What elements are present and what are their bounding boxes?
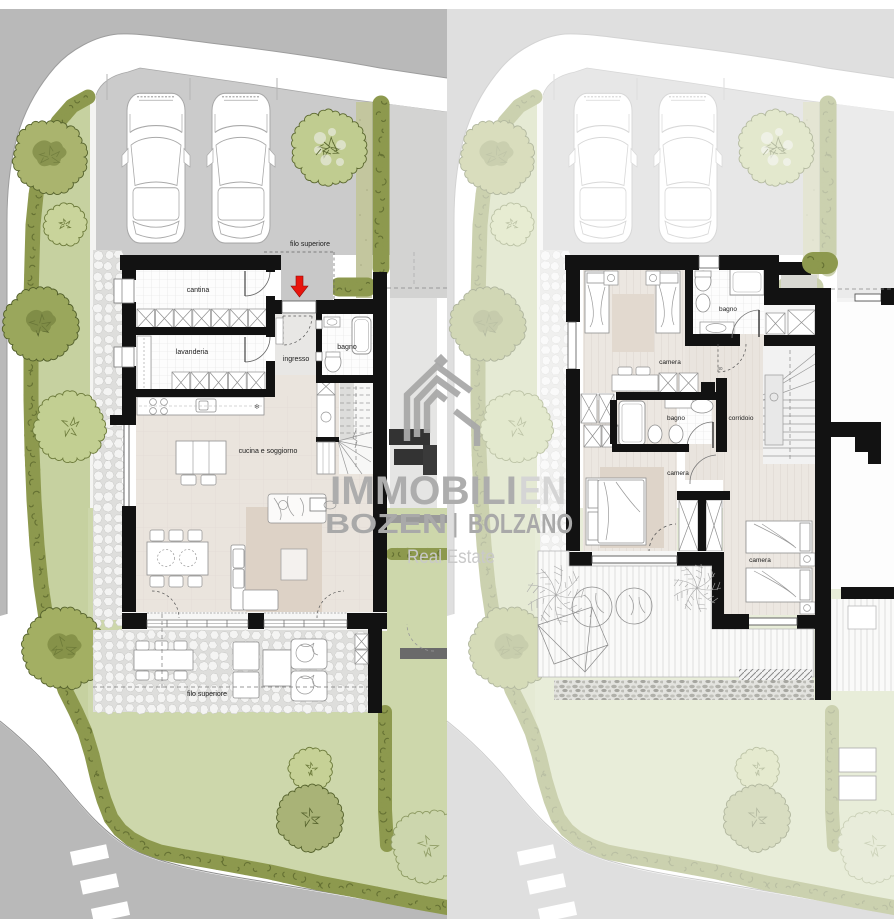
svg-text:BOZEN: BOZEN [325, 508, 447, 539]
svg-text:filo superiore: filo superiore [187, 691, 227, 698]
svg-text:bagno: bagno [719, 306, 737, 313]
svg-text:BOLZANO: BOLZANO [468, 508, 573, 539]
svg-text:40: 40 [717, 366, 723, 371]
svg-text:IMMOBILI: IMMOBILI [330, 469, 517, 513]
svg-text:filo superiore: filo superiore [290, 241, 330, 248]
svg-text:camera: camera [749, 557, 771, 564]
svg-text:ingresso: ingresso [283, 356, 310, 363]
svg-text:bagno: bagno [667, 415, 685, 422]
svg-text:❄: ❄ [254, 403, 260, 411]
svg-text:|: | [452, 508, 459, 538]
svg-text:EN: EN [519, 469, 566, 513]
svg-text:camera: camera [659, 359, 681, 366]
svg-text:camera: camera [667, 470, 689, 477]
svg-text:corridoio: corridoio [729, 415, 754, 422]
svg-text:bagno: bagno [337, 344, 357, 351]
svg-text:Real Estate: Real Estate [407, 547, 495, 568]
svg-text:cantina: cantina [187, 287, 210, 294]
svg-text:lavanderia: lavanderia [176, 349, 208, 356]
svg-text:cucina e soggiorno: cucina e soggiorno [239, 448, 298, 455]
